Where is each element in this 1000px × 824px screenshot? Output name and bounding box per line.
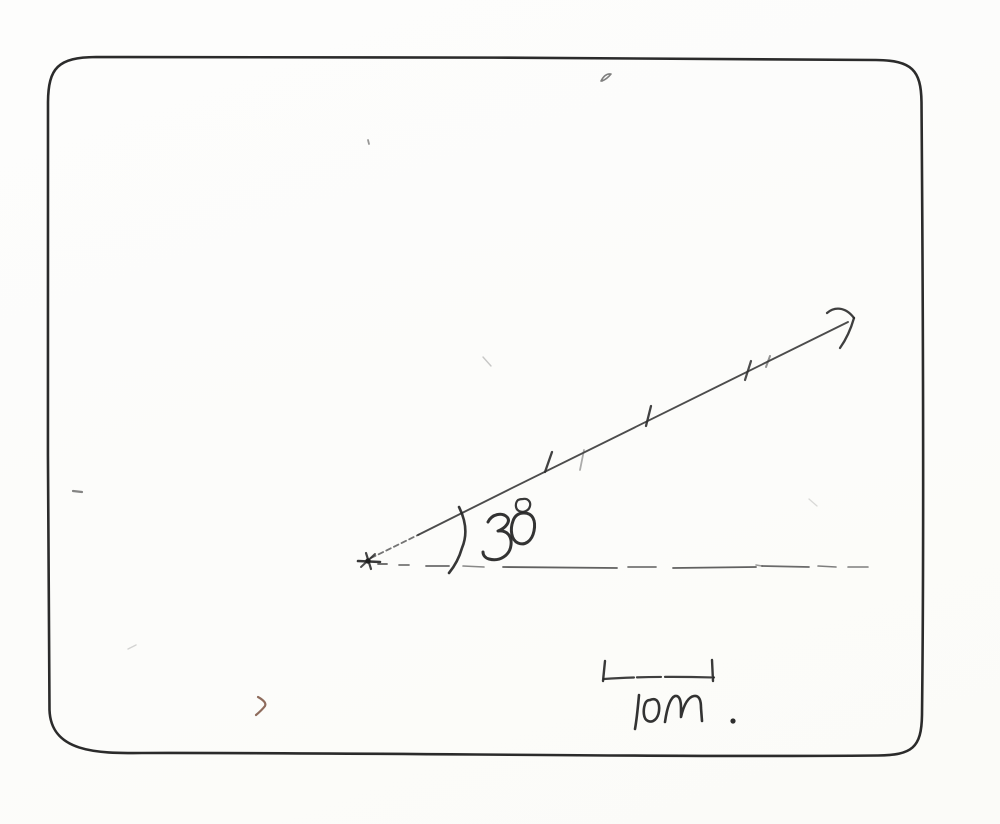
scale-label-period	[730, 718, 735, 723]
angle-label-stroke-zero	[511, 513, 534, 544]
scalebar-line	[604, 677, 714, 679]
distance-tick	[646, 406, 651, 426]
stray-mark-bottom-left	[128, 645, 136, 649]
frame-border	[48, 57, 923, 756]
vector-line	[418, 322, 848, 535]
scale-label-stroke-zero	[644, 699, 659, 721]
stray-dot-upper	[368, 140, 369, 144]
scalebar-right-tick	[712, 660, 713, 681]
angle-label-stroke-degree	[516, 499, 530, 512]
stray-chevron	[256, 697, 265, 715]
vector-line-leadin	[371, 535, 419, 559]
stray-dash-left	[73, 491, 82, 492]
stray-diagonal-faint	[483, 357, 491, 366]
stray-diagonal-faint-right	[809, 499, 817, 506]
baseline-dash	[762, 566, 809, 567]
arrowhead-upper-barb	[827, 309, 854, 318]
baseline-dash	[673, 567, 756, 568]
baseline-dash	[756, 565, 762, 566]
origin-point-dot	[365, 558, 370, 563]
angle-arc	[449, 507, 465, 573]
scale-label-stroke-m	[665, 696, 702, 722]
sketch-svg	[0, 0, 1000, 824]
stray-squiggle-top	[601, 74, 611, 81]
scanned-paper-page: 30° 10 m. Pencil sketch on paper inside …	[0, 0, 1000, 824]
baseline-dash	[503, 567, 617, 568]
scale-label-stroke-one	[635, 695, 639, 729]
baseline-dash	[818, 566, 836, 567]
baseline-dash	[463, 566, 484, 567]
angle-label-stroke-three	[483, 514, 511, 559]
